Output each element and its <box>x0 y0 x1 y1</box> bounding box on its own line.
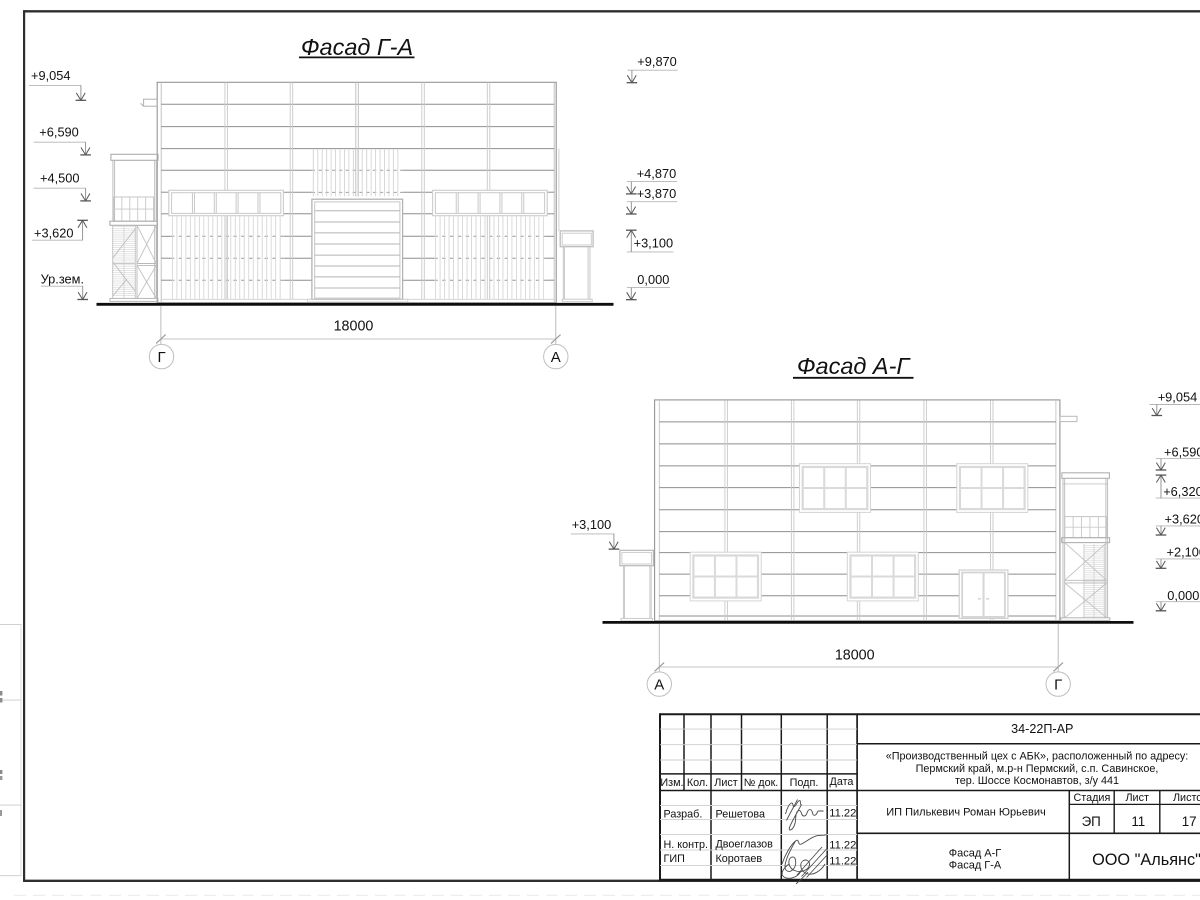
svg-text:11.22: 11.22 <box>829 808 856 820</box>
svg-text:+9,054: +9,054 <box>1158 390 1198 405</box>
svg-text:11: 11 <box>1131 814 1145 829</box>
svg-text:18000: 18000 <box>835 648 875 664</box>
svg-text:+3,100: +3,100 <box>634 235 674 250</box>
svg-text:Фасад Г-А: Фасад Г-А <box>301 34 413 60</box>
svg-text:17: 17 <box>1182 814 1197 829</box>
svg-text:+6,590: +6,590 <box>1164 444 1200 459</box>
svg-text:№ док.: № док. <box>744 777 779 789</box>
svg-text:Разраб.: Разраб. <box>664 808 703 820</box>
svg-text:Н. контр.: Н. контр. <box>664 839 709 851</box>
svg-text:+6,320: +6,320 <box>1163 484 1200 499</box>
svg-text:11.22: 11.22 <box>829 855 856 867</box>
svg-text:ООО "Альянс": ООО "Альянс" <box>1092 851 1200 869</box>
svg-text:Изм.: Изм. <box>660 777 683 789</box>
svg-text:+4,500: +4,500 <box>40 171 80 186</box>
svg-text:Фасад Г-А: Фасад Г-А <box>949 860 1002 872</box>
svg-text:ИП Пилькевич Роман Юрьевич: ИП Пилькевич Роман Юрьевич <box>886 807 1045 819</box>
svg-text:+3,100: +3,100 <box>572 517 612 532</box>
svg-text:Стадия: Стадия <box>1073 792 1110 804</box>
svg-text:+3,620: +3,620 <box>34 225 74 240</box>
svg-text:Г: Г <box>1054 676 1062 693</box>
svg-text:+9,870: +9,870 <box>637 54 677 69</box>
svg-text:Пермский край, м.р-н Пермский,: Пермский край, м.р-н Пермский, с.п. Сави… <box>916 763 1159 775</box>
svg-text:34-22П-АР: 34-22П-АР <box>1011 722 1073 736</box>
svg-text:Дата: Дата <box>830 776 854 788</box>
svg-text:0,000: 0,000 <box>1167 588 1199 603</box>
svg-text:Лист: Лист <box>1125 792 1149 804</box>
svg-text:+2,100: +2,100 <box>1167 545 1200 560</box>
svg-text:Решетова: Решетова <box>716 808 766 820</box>
svg-text:+3,620: +3,620 <box>1165 511 1200 526</box>
svg-text:Листов: Листов <box>1173 792 1200 804</box>
svg-text:тер. Шоссе Космонавтов, з/у 44: тер. Шоссе Космонавтов, з/у 441 <box>955 775 1119 787</box>
svg-text:Подп.: Подп. <box>790 777 819 789</box>
svg-text:+6,590: +6,590 <box>39 124 79 139</box>
svg-text:А: А <box>654 676 664 693</box>
svg-text:18000: 18000 <box>334 319 374 335</box>
svg-text:Двоеглазов: Двоеглазов <box>716 839 774 851</box>
svg-text:А: А <box>551 349 561 366</box>
svg-text:«Производственный цех с АБК»,: «Производственный цех с АБК», расположен… <box>886 751 1189 763</box>
svg-text:Г: Г <box>157 349 165 366</box>
svg-text:Фасад А-Г: Фасад А-Г <box>949 848 1002 860</box>
svg-text:+9,054: +9,054 <box>31 68 71 83</box>
svg-text:ЭП: ЭП <box>1082 814 1101 829</box>
svg-text:Кол.: Кол. <box>687 777 708 789</box>
svg-text:+3,870: +3,870 <box>637 186 677 201</box>
svg-text:0,000: 0,000 <box>637 272 669 287</box>
svg-text:+4,870: +4,870 <box>637 166 677 181</box>
svg-text:Ур.зем.: Ур.зем. <box>41 271 84 286</box>
svg-text:11.22: 11.22 <box>829 839 856 851</box>
svg-text:Фасад А-Г: Фасад А-Г <box>797 353 912 379</box>
svg-text:ГИП: ГИП <box>664 853 685 865</box>
svg-text:Коротаев: Коротаев <box>716 853 763 865</box>
svg-text:Лист: Лист <box>714 777 738 789</box>
